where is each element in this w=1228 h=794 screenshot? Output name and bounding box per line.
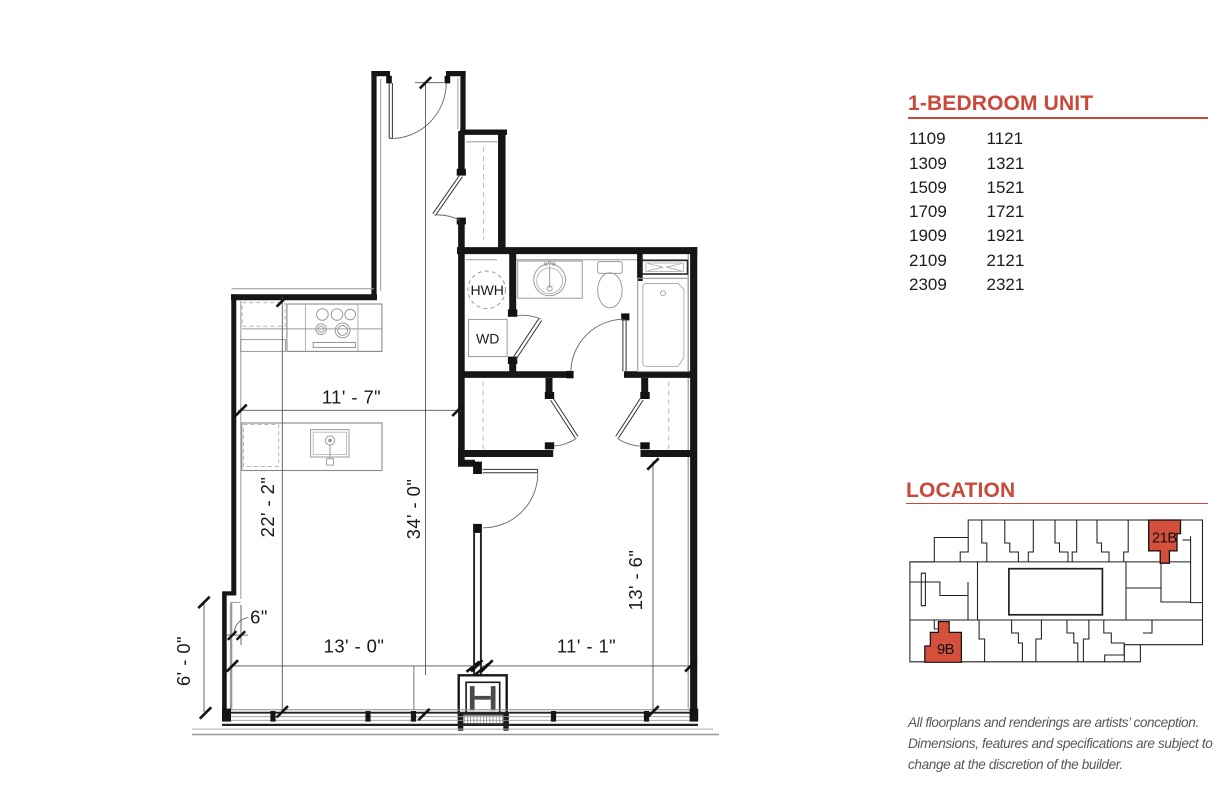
svg-text:WD: WD [476, 331, 499, 347]
svg-text:9B: 9B [937, 642, 955, 658]
svg-text:34' - 0": 34' - 0" [403, 479, 424, 540]
svg-text:11' - 7": 11' - 7" [322, 387, 381, 408]
svg-text:22' - 2": 22' - 2" [257, 477, 278, 538]
svg-text:21B: 21B [1152, 531, 1177, 547]
svg-text:6": 6" [250, 607, 268, 628]
svg-text:11' - 1": 11' - 1" [557, 636, 616, 657]
svg-text:6' - 0": 6' - 0" [173, 636, 194, 686]
svg-text:13' - 6": 13' - 6" [625, 550, 646, 611]
svg-text:13' - 0": 13' - 0" [324, 636, 385, 657]
svg-text:HWH: HWH [470, 282, 503, 298]
